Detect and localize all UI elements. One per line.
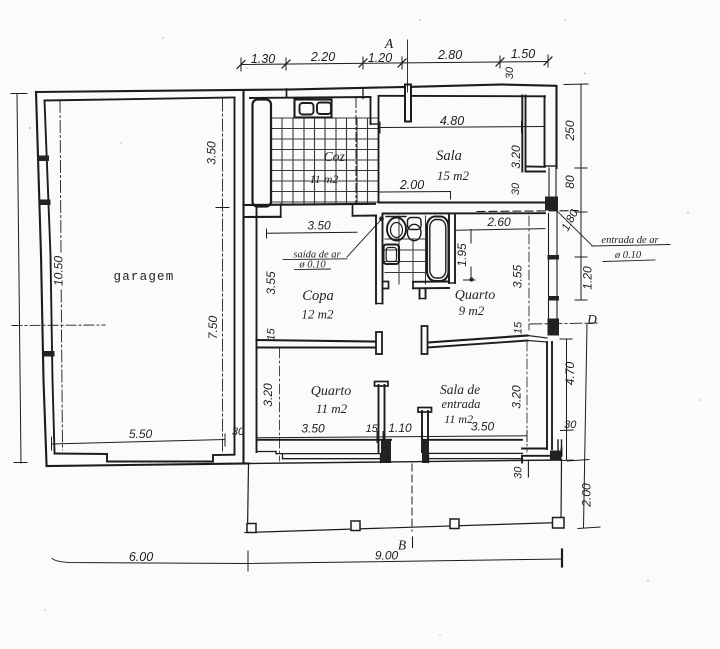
svg-text:11 m2: 11 m2 <box>444 412 473 426</box>
svg-text:2.60: 2.60 <box>486 215 511 229</box>
svg-text:4.70: 4.70 <box>563 361 577 385</box>
svg-text:Copa: Copa <box>302 288 333 304</box>
svg-text:ø 0.10: ø 0.10 <box>298 260 326 271</box>
svg-text:30: 30 <box>510 182 522 195</box>
svg-text:3.20: 3.20 <box>261 383 275 407</box>
svg-text:3.20: 3.20 <box>509 145 523 169</box>
svg-text:1.50: 1.50 <box>511 47 535 61</box>
svg-text:Coz.: Coz. <box>324 149 348 164</box>
svg-text:2.20: 2.20 <box>310 50 335 64</box>
svg-text:1.20: 1.20 <box>581 266 595 290</box>
svg-text:6.00: 6.00 <box>129 550 153 564</box>
svg-text:30: 30 <box>564 419 577 431</box>
svg-text:B: B <box>398 538 406 553</box>
svg-text:2.00: 2.00 <box>580 483 594 508</box>
svg-text:30: 30 <box>513 466 525 479</box>
svg-text:15: 15 <box>266 328 278 341</box>
svg-text:15: 15 <box>513 321 525 334</box>
svg-text:garagem: garagem <box>114 270 175 284</box>
svg-text:Sala de: Sala de <box>440 382 480 397</box>
svg-text:3.50: 3.50 <box>471 420 495 434</box>
svg-text:7.50: 7.50 <box>206 315 220 339</box>
svg-text:15 m2: 15 m2 <box>437 168 470 183</box>
svg-text:30: 30 <box>232 426 245 438</box>
svg-text:5.50: 5.50 <box>129 427 153 441</box>
svg-text:9.00: 9.00 <box>375 549 399 563</box>
svg-text:A: A <box>384 37 394 52</box>
svg-text:D: D <box>586 312 597 327</box>
svg-text:entrada: entrada <box>442 397 481 411</box>
svg-text:9 m2: 9 m2 <box>459 303 485 318</box>
svg-text:entrada de ar: entrada de ar <box>601 235 659 246</box>
svg-text:ø 0.10: ø 0.10 <box>614 250 642 261</box>
svg-text:2.00: 2.00 <box>399 178 424 192</box>
svg-text:4.80: 4.80 <box>440 114 464 128</box>
svg-text:250: 250 <box>563 120 577 141</box>
svg-text:1.20: 1.20 <box>368 51 392 65</box>
svg-text:15: 15 <box>366 423 379 435</box>
svg-text:3.55: 3.55 <box>511 264 525 288</box>
svg-text:80: 80 <box>563 175 577 189</box>
svg-text:11 m2: 11 m2 <box>316 401 348 416</box>
svg-text:10.50: 10.50 <box>52 256 66 286</box>
svg-text:1.95: 1.95 <box>455 243 469 267</box>
svg-text:1.30: 1.30 <box>251 52 275 66</box>
svg-text:11 m2: 11 m2 <box>310 172 339 186</box>
svg-text:3.50: 3.50 <box>307 219 331 233</box>
svg-text:3.50: 3.50 <box>205 141 219 165</box>
svg-text:3.50: 3.50 <box>301 422 325 436</box>
svg-text:3.55: 3.55 <box>264 271 278 295</box>
svg-text:Quarto: Quarto <box>455 288 495 303</box>
svg-text:12 m2: 12 m2 <box>301 307 334 322</box>
svg-text:Quarto: Quarto <box>311 384 351 399</box>
svg-text:1.10: 1.10 <box>388 421 412 435</box>
svg-text:3.20: 3.20 <box>510 385 524 409</box>
svg-text:30: 30 <box>504 66 516 79</box>
svg-text:2.80: 2.80 <box>437 48 462 62</box>
svg-text:Sala: Sala <box>436 148 462 164</box>
